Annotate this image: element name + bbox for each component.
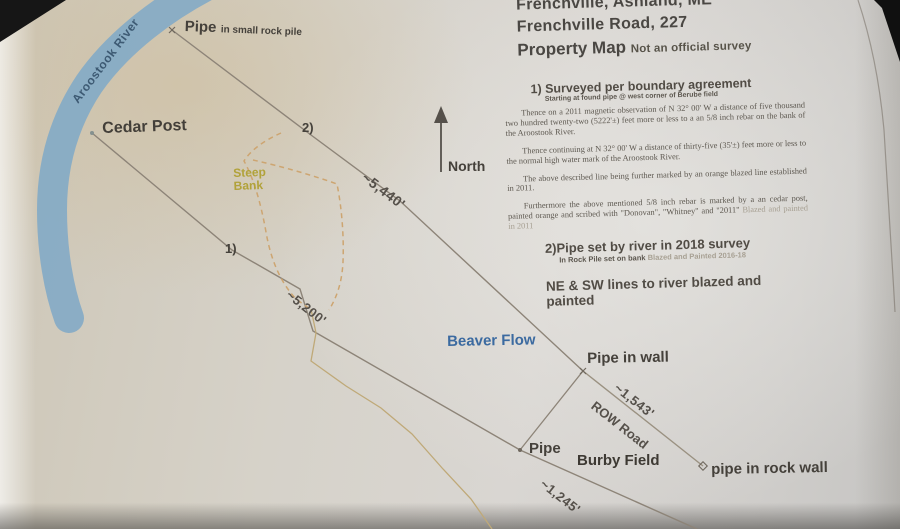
photo-corner-top-left (0, 0, 66, 42)
note1-para4: Furthermore the above mentioned 5/8 inch… (508, 194, 809, 232)
page-title: Property Map Not an official survey (517, 33, 803, 61)
paper-crease (858, 0, 895, 312)
line2-number-label: 2) (302, 121, 314, 135)
road-line: Frenchville Road, 227 (517, 11, 803, 37)
note1-para1: Thence on a 2011 magnetic observation of… (505, 101, 806, 139)
notes-column: Frenchville, Ashland, ME Frenchville Roa… (502, 0, 811, 310)
pipe-south-label: Pipe (529, 441, 561, 457)
pipe-in-wall-label: Pipe in wall (587, 350, 669, 367)
photo-corner-top-right (874, 0, 900, 62)
steep-bank-label: Steep Bank (233, 166, 267, 192)
north-label: North (448, 159, 485, 174)
burby-field-label: Burby Field (577, 453, 660, 469)
steep-bank-label-line2: Bank (233, 178, 266, 192)
cedar-post-label: Cedar Post (102, 118, 187, 138)
pipe-marker-south (518, 448, 522, 452)
pipe-in-rock-wall-label: pipe in rock wall (711, 460, 828, 478)
line1-number-label: 1) (225, 242, 237, 256)
river-shape (52, 0, 214, 318)
note2-subheading-faint: Blazed and Painted 2016-18 (647, 250, 746, 262)
pipe-marker-top (169, 27, 175, 33)
cedar-post-marker (90, 131, 94, 135)
steep-bank-dash-west (244, 133, 310, 309)
note1-para2: Thence continuing at N 32° 00' W a dista… (506, 138, 806, 166)
beaver-flow-label: Beaver Flow (447, 332, 536, 349)
pipe-in-wall-marker (580, 368, 586, 374)
north-arrow-icon (434, 106, 448, 172)
pipe-top-label-main: Pipe (184, 18, 216, 36)
pipe-top-label-detail: in small rock pile (221, 24, 302, 38)
note1-para3: The above described line being further m… (507, 166, 807, 194)
east-end-line (520, 371, 583, 450)
property-map-photo: Pipe in small rock pile Aroostook River … (0, 0, 900, 529)
note2-subheading-text: In Rock Pile set on bank (559, 253, 645, 264)
page-title-text: Property Map (517, 38, 626, 60)
page-subtitle: Not an official survey (631, 40, 752, 55)
